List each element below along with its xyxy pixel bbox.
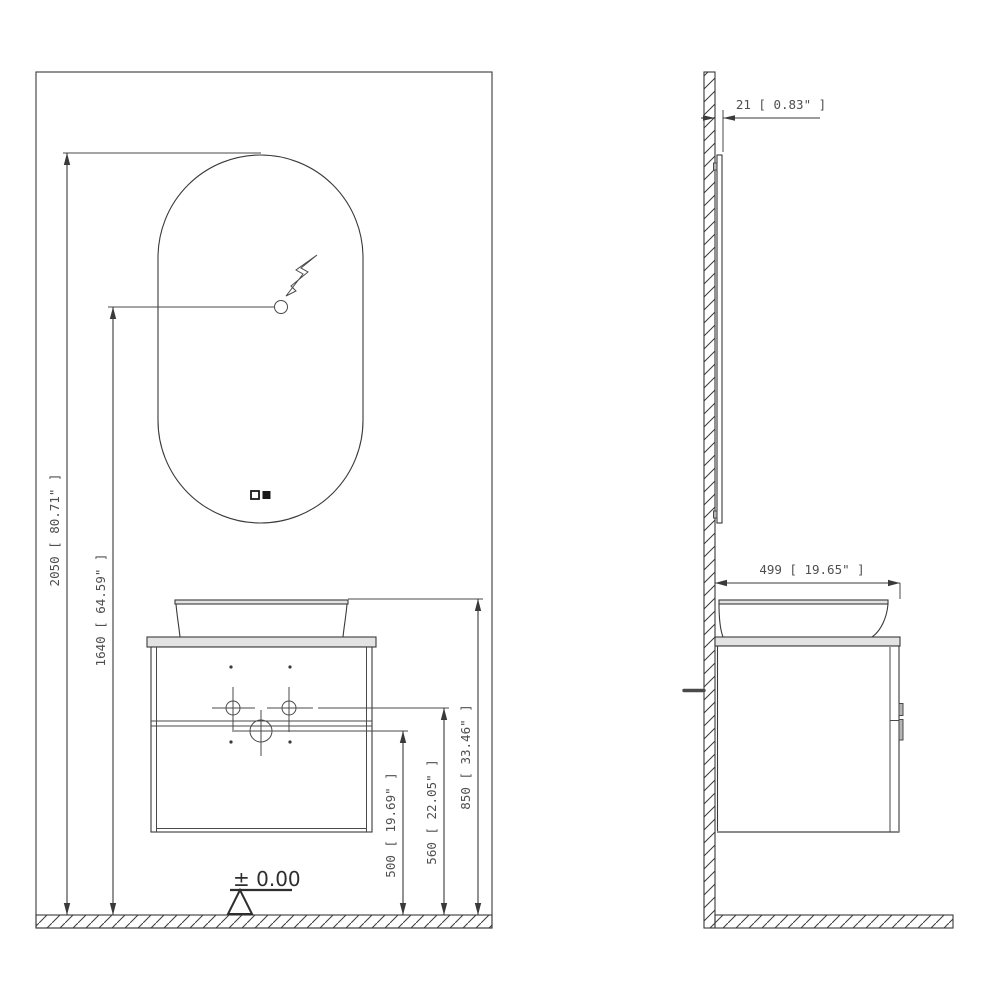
vessel-basin-front	[175, 600, 348, 637]
floor-hatch-side	[715, 915, 953, 928]
screw-point	[229, 665, 232, 668]
screw-point	[288, 665, 291, 668]
drawer-edge-bottom	[899, 720, 903, 741]
side-elevation-view: 21 [ 0.83" ] 499 [ 19.65" ]	[684, 72, 953, 928]
datum-label: ± 0.00	[233, 867, 301, 891]
front-elevation-view: 2050 [ 80.71" ] 1640 [ 64.59" ] 500 [ 19…	[36, 72, 492, 928]
screw-point	[288, 740, 291, 743]
dim-label-mirror-thickness: 21 [ 0.83" ]	[736, 97, 826, 112]
countertop-front	[147, 637, 376, 647]
floor-datum: ± 0.00	[228, 867, 301, 914]
technical-drawing: 2050 [ 80.71" ] 1640 [ 64.59" ] 500 [ 19…	[0, 0, 1000, 1000]
drawer-edge-top	[899, 704, 903, 716]
dim-label-switch-height: 1640 [ 64.59" ]	[93, 554, 108, 667]
mirror-bracket-top	[714, 163, 718, 170]
countertop-side	[715, 637, 900, 646]
drawing-canvas: 2050 [ 80.71" ] 1640 [ 64.59" ] 500 [ 19…	[0, 0, 1000, 1000]
dim-label-counter-height: 850 [ 33.46" ]	[458, 704, 473, 809]
dim-label-cabinet-depth: 499 [ 19.65" ]	[759, 562, 864, 577]
screw-point	[229, 740, 232, 743]
wall-hatch	[704, 72, 715, 928]
floor-hatch	[36, 915, 492, 928]
oval-mirror	[158, 155, 363, 523]
vanity-cabinet-side	[717, 646, 903, 832]
dim-label-drain-height: 500 [ 19.69" ]	[383, 772, 398, 877]
mirror-bracket-bottom	[714, 511, 718, 518]
dim-label-inlet-height: 560 [ 22.05" ]	[424, 759, 439, 864]
mirror-button-filled-icon	[263, 491, 271, 499]
dim-cabinet-depth: 499 [ 19.65" ]	[715, 562, 900, 599]
mirror-button-outline-icon	[251, 491, 259, 499]
datum-triangle-icon	[228, 890, 252, 914]
vessel-basin-side	[719, 600, 888, 637]
dim-mirror-thickness: 21 [ 0.83" ]	[701, 97, 826, 152]
mirror-side-profile	[717, 155, 722, 523]
dim-label-total-height: 2050 [ 80.71" ]	[47, 474, 62, 587]
